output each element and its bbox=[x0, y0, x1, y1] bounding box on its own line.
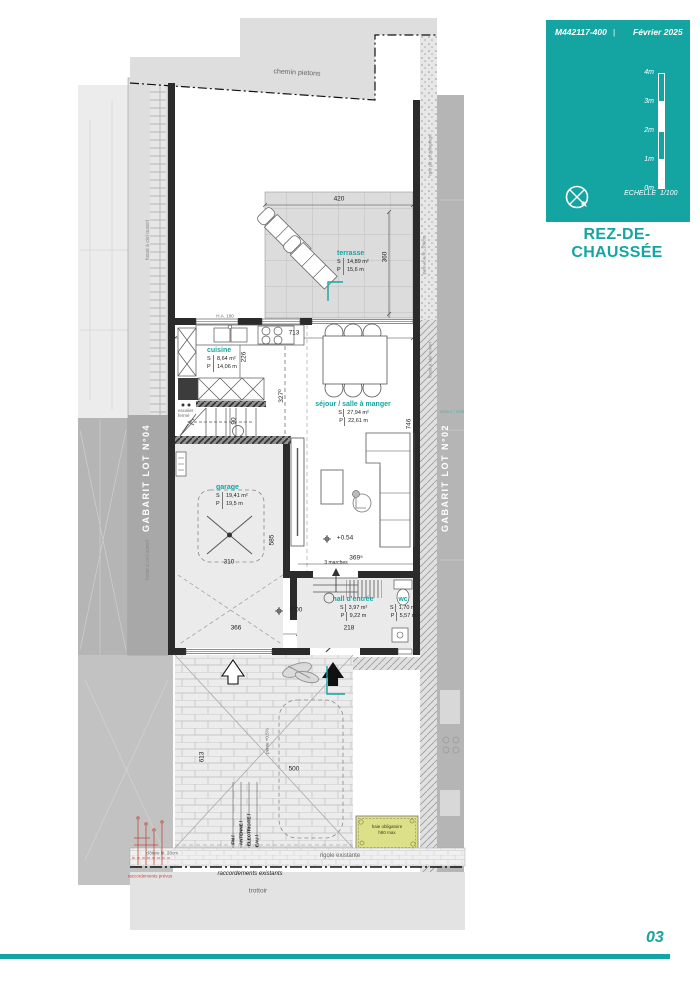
hedge-note: haie obligatoire h80 max bbox=[358, 824, 416, 836]
utility-antenne: ANTENNE / bbox=[239, 821, 244, 845]
fence-label: clôture ht. 20cm bbox=[146, 851, 178, 856]
utility-eau: EAU / bbox=[255, 835, 260, 847]
dim-house-width: 713 bbox=[289, 330, 300, 337]
room-label-sejour: séjour / salle à manger S27,94 m² P22,61… bbox=[308, 401, 398, 426]
scale-tick: 0m bbox=[636, 185, 654, 192]
scalebar-segment bbox=[658, 73, 665, 102]
scale-tick: 3m bbox=[636, 98, 654, 105]
room-name: séjour / salle à manger bbox=[308, 401, 398, 408]
room-label-terrasse: terrasse S14,89 m² P15,6 m bbox=[337, 250, 369, 275]
kitchen-fixtures bbox=[178, 325, 304, 407]
scale-tick: 4m bbox=[636, 69, 654, 76]
room-name: cuisine bbox=[207, 347, 237, 354]
ditch-label: fossé à ciel ouvert bbox=[145, 540, 151, 580]
room-name: terrasse bbox=[337, 250, 369, 257]
scale-tick: 2m bbox=[636, 127, 654, 134]
insulated-wall bbox=[175, 436, 291, 444]
hedge-line2: h80 max bbox=[358, 830, 416, 836]
dim-sejour-depth: 746 bbox=[406, 419, 413, 430]
perimeter-value: 15,6 m bbox=[343, 266, 364, 274]
steps-note: 3 marches bbox=[324, 560, 347, 566]
dim-hall-width: 369⁵ bbox=[349, 555, 363, 562]
hedge-strip bbox=[353, 655, 420, 850]
ditch-label: fossé à ciel ouvert bbox=[428, 342, 433, 378]
room-label-hall: hall d'entrée S3,97 m² P9,22 m bbox=[327, 596, 379, 621]
wheelchair-symbol bbox=[353, 491, 372, 513]
page-number: 03 bbox=[646, 929, 664, 947]
retaining-wall-label: mur de soutènement bbox=[428, 134, 433, 175]
dim-terrace-width: 420 bbox=[334, 196, 345, 203]
ditch-label: fossé à ciel ouvert bbox=[145, 220, 151, 260]
scale-tick: 1m bbox=[636, 156, 654, 163]
scalebar-segment bbox=[658, 160, 665, 189]
lintel-note: H.A. 100 bbox=[216, 314, 234, 319]
sheet-title: REZ-DE-CHAUSSÉE bbox=[541, 226, 693, 262]
screen-label: pare-vue ht. 180cm bbox=[422, 236, 427, 275]
dim-stair-width: 90 bbox=[231, 417, 238, 424]
street-bands bbox=[130, 848, 465, 930]
garage-area bbox=[175, 444, 283, 648]
living-furniture bbox=[291, 324, 414, 547]
scalebar-segment bbox=[658, 131, 665, 160]
terrace bbox=[256, 192, 413, 318]
room-label-garage: garage S19,41 m² P19,5 m bbox=[216, 484, 248, 509]
dim-drive-depth: 613 bbox=[199, 752, 206, 763]
gabarit-lot-02: GABARIT LOT N°02 bbox=[440, 424, 450, 532]
footer-rule bbox=[0, 954, 670, 959]
gutter-label: rigole existante bbox=[320, 853, 360, 859]
dim-kitchen-depth: 226 bbox=[241, 352, 248, 363]
dim-garage-width2: 366 bbox=[231, 625, 242, 632]
dim-interior-depth: 327⁰ bbox=[277, 389, 285, 402]
connections-planned-label: raccordements prévus bbox=[128, 874, 173, 879]
scalebar-segment bbox=[658, 102, 665, 131]
pedestrian-path bbox=[130, 18, 437, 100]
neighbor-room-label: séjour / salle à manger bbox=[440, 409, 464, 414]
room-name: wc bbox=[385, 596, 421, 603]
dim-garage-width: 310 bbox=[224, 559, 235, 566]
gabarit-lot-04: GABARIT LOT N°04 bbox=[141, 424, 151, 532]
room-name: garage bbox=[216, 484, 248, 491]
level-sejour: +0.54 bbox=[337, 535, 353, 542]
dim-drive-width: 500 bbox=[289, 766, 300, 773]
slope-note: pente +0,5% bbox=[265, 728, 270, 753]
dim-terrace-depth: 360 bbox=[382, 252, 389, 263]
stair-note: escalier fermé bbox=[178, 408, 202, 418]
room-label-cuisine: cuisine S8,64 m² P14,06 m bbox=[207, 347, 237, 372]
sidewalk-label: trottoir bbox=[249, 888, 267, 895]
level-hall: 0.00 bbox=[290, 607, 303, 614]
connections-existing-label: raccordements existants bbox=[217, 871, 282, 877]
dim-hall-width2: 218 bbox=[344, 625, 355, 632]
scale-value: 1/100 bbox=[660, 190, 678, 197]
room-label-wc: wc S1,70 m² P5,57 m bbox=[385, 596, 421, 621]
utility-electricite: ELECTRICITE / bbox=[247, 814, 252, 846]
room-name: hall d'entrée bbox=[327, 596, 379, 603]
dim-garage-depth: 585 bbox=[269, 535, 276, 546]
title-block: M442117-400 | Février 2025 ECHELLE 1/100 bbox=[546, 20, 690, 222]
utility-fm: FM / bbox=[231, 836, 236, 845]
plan-sheet: chemin pietons terrasse S14,89 m² P15,6 … bbox=[0, 0, 700, 992]
surface-value: 14,89 m² bbox=[343, 258, 369, 266]
